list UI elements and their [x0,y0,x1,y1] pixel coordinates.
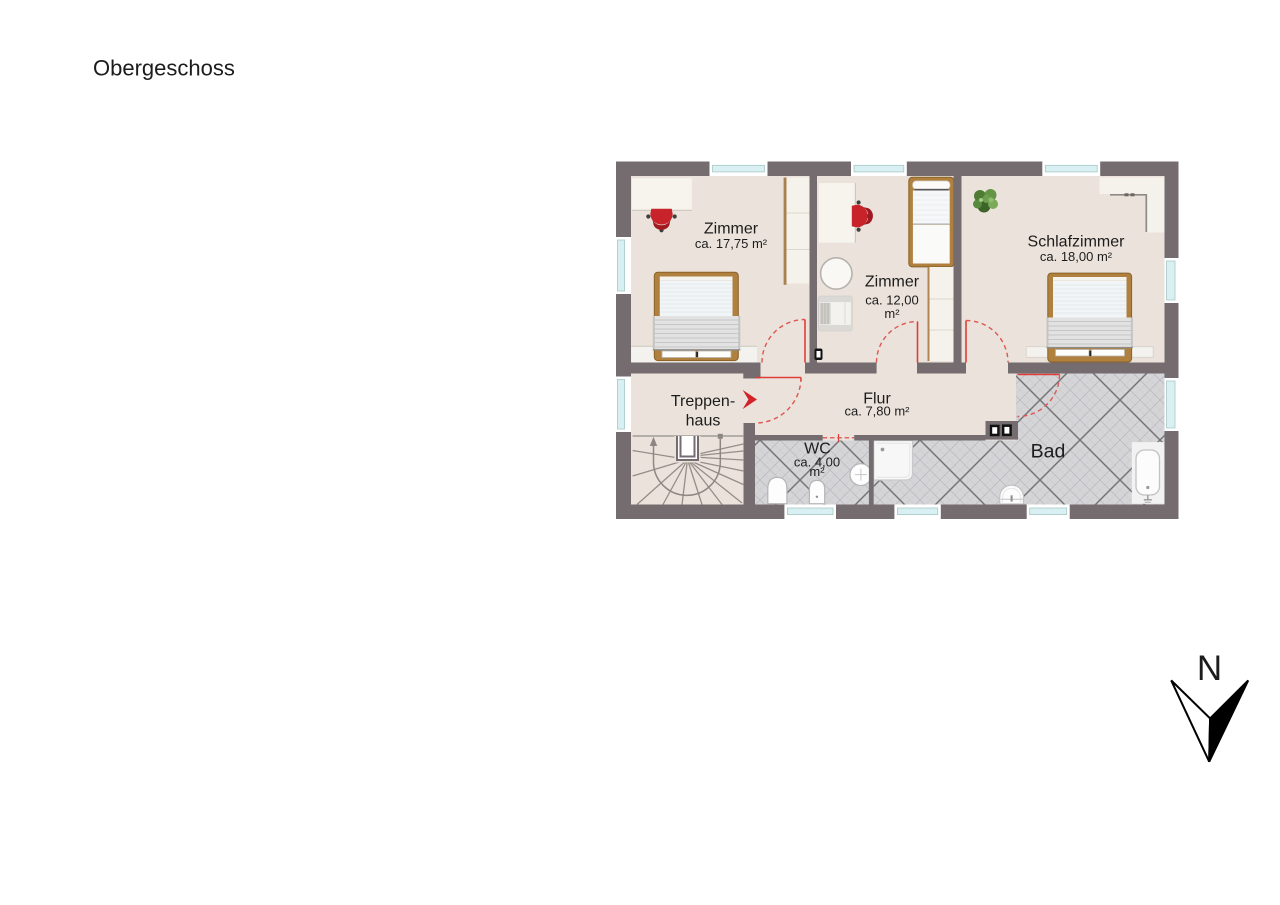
svg-text:Obergeschoss: Obergeschoss [93,56,235,81]
svg-text:Treppen-: Treppen- [671,393,735,410]
svg-text:Zimmer: Zimmer [704,221,759,238]
svg-text:haus: haus [686,413,721,430]
svg-text:ca. 17,75 m²: ca. 17,75 m² [695,236,768,251]
svg-text:ca. 7,80 m²: ca. 7,80 m² [844,404,910,419]
svg-text:N: N [1197,649,1222,688]
svg-text:Bad: Bad [1031,441,1066,463]
svg-text:m²: m² [809,464,825,479]
svg-text:Zimmer: Zimmer [865,274,920,291]
svg-text:Schlafzimmer: Schlafzimmer [1028,234,1126,251]
svg-text:m²: m² [884,306,900,321]
svg-text:ca. 18,00 m²: ca. 18,00 m² [1040,249,1113,264]
